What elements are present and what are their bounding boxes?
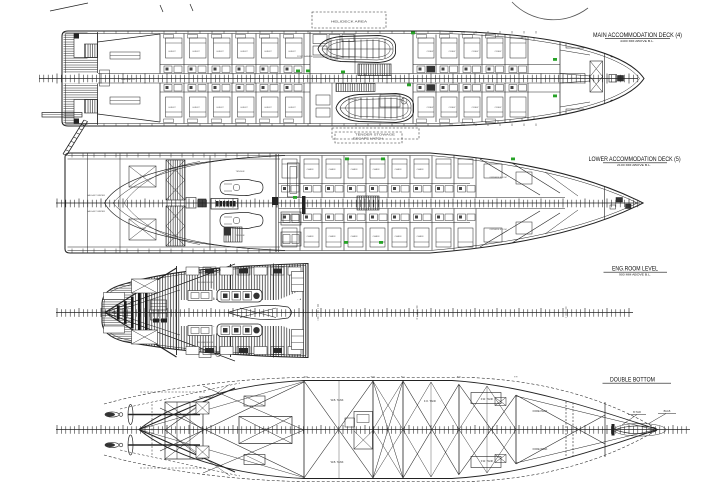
svg-text:F.W.: F.W.: [457, 377, 462, 379]
svg-text:BULB: BULB: [664, 409, 671, 413]
svg-text:CABIN: CABIN: [417, 235, 424, 238]
svg-text:CREW: CREW: [427, 107, 435, 109]
svg-text:900 MM ABOVE B.L.: 900 MM ABOVE B.L.: [619, 272, 651, 276]
svg-text:F.O. TANK: F.O. TANK: [424, 399, 436, 403]
svg-text:OWNERS ROOM: OWNERS ROOM: [489, 229, 506, 231]
svg-text:LOWER ACCOMMODATION DECK (5): LOWER ACCOMMODATION DECK (5): [589, 156, 681, 163]
svg-text:GUEST: GUEST: [216, 51, 224, 53]
svg-text:CABIN: CABIN: [417, 168, 424, 171]
svg-text:ENGINE ROOM: ENGINE ROOM: [197, 342, 213, 344]
svg-text:GUEST: GUEST: [168, 107, 176, 109]
svg-text:4400 MM ABOVE B.L.: 4400 MM ABOVE B.L.: [620, 39, 654, 43]
svg-text:F.P.: F.P.: [514, 377, 518, 379]
svg-text:TENDER: TENDER: [236, 235, 245, 237]
svg-text:GUEST: GUEST: [288, 107, 296, 109]
svg-text:MAIN SALON: MAIN SALON: [121, 78, 135, 81]
svg-text:F.W. TANK: F.W. TANK: [481, 397, 494, 401]
svg-text:GUEST: GUEST: [168, 51, 176, 53]
svg-text:GUEST: GUEST: [192, 107, 200, 109]
svg-text:CREW: CREW: [495, 51, 503, 53]
svg-text:CREW: CREW: [427, 51, 435, 53]
svg-text:W.B. TANK: W.B. TANK: [331, 460, 344, 464]
svg-text:CABIN: CABIN: [373, 168, 380, 171]
svg-text:GALLEY: GALLEY: [330, 58, 339, 61]
svg-text:2100 MM ABOVE B.L.: 2100 MM ABOVE B.L.: [617, 163, 651, 167]
svg-text:CABIN: CABIN: [329, 235, 336, 238]
svg-text:TANK: TANK: [140, 227, 146, 230]
svg-text:BALLAST WATER: BALLAST WATER: [87, 210, 105, 213]
svg-text:W.B. TANK: W.B. TANK: [331, 398, 344, 402]
svg-text:F.O.: F.O.: [401, 377, 405, 379]
svg-text:CABIN: CABIN: [395, 168, 402, 171]
svg-text:CREW: CREW: [449, 107, 457, 109]
svg-text:HELIDECK AREA: HELIDECK AREA: [331, 20, 367, 24]
svg-text:CABIN: CABIN: [307, 168, 314, 171]
svg-text:GUEST: GUEST: [264, 107, 272, 109]
svg-text:CABIN: CABIN: [351, 235, 358, 238]
svg-text:FORE PEAK: FORE PEAK: [533, 409, 548, 413]
svg-text:CABIN: CABIN: [373, 235, 380, 238]
svg-text:PORT GARAGE: PORT GARAGE: [297, 55, 314, 58]
svg-text:CABIN: CABIN: [395, 235, 402, 238]
svg-text:GUEST: GUEST: [192, 51, 200, 53]
svg-text:W.B.: W.B.: [304, 377, 309, 379]
svg-text:DOUBLE BOTTOM: DOUBLE BOTTOM: [610, 376, 655, 383]
svg-text:GUEST: GUEST: [240, 107, 248, 109]
svg-text:MAIN ACCOMMODATION DECK (4): MAIN ACCOMMODATION DECK (4): [593, 32, 682, 39]
svg-text:GUEST: GUEST: [240, 51, 248, 53]
svg-text:TANK: TANK: [140, 175, 146, 178]
svg-text:W.B.: W.B.: [371, 377, 376, 379]
svg-text:TENDER: TENDER: [236, 171, 245, 173]
svg-text:MESS ROOM: MESS ROOM: [348, 99, 362, 101]
svg-text:ESCAPE HATCH: ESCAPE HATCH: [353, 136, 383, 140]
svg-text:CABIN: CABIN: [307, 235, 314, 238]
svg-text:ENG.ROOM LEVEL: ENG.ROOM LEVEL: [612, 265, 658, 272]
svg-text:GUEST: GUEST: [216, 107, 224, 109]
svg-text:FOC'SLE: FOC'SLE: [570, 78, 580, 80]
svg-text:KEEL: KEEL: [262, 427, 269, 431]
svg-text:BALLAST WATER: BALLAST WATER: [87, 194, 105, 197]
svg-text:B.THR: B.THR: [633, 410, 641, 414]
svg-text:F.W. TANK: F.W. TANK: [481, 459, 494, 463]
svg-text:OWNERS ROOM: OWNERS ROOM: [489, 177, 506, 179]
svg-text:ENGINE ROOM: ENGINE ROOM: [197, 282, 213, 284]
svg-text:CREW: CREW: [472, 107, 480, 109]
svg-text:CABIN: CABIN: [329, 168, 336, 171]
svg-text:CREW: CREW: [495, 107, 503, 109]
svg-text:CABIN: CABIN: [351, 168, 358, 171]
svg-text:GUEST: GUEST: [288, 51, 296, 53]
svg-text:GUEST: GUEST: [264, 51, 272, 53]
svg-text:AFT PEAK: AFT PEAK: [199, 395, 212, 399]
svg-text:CREW: CREW: [472, 51, 480, 53]
svg-text:FORE PEAK: FORE PEAK: [533, 447, 548, 451]
svg-text:CREW: CREW: [449, 51, 457, 53]
